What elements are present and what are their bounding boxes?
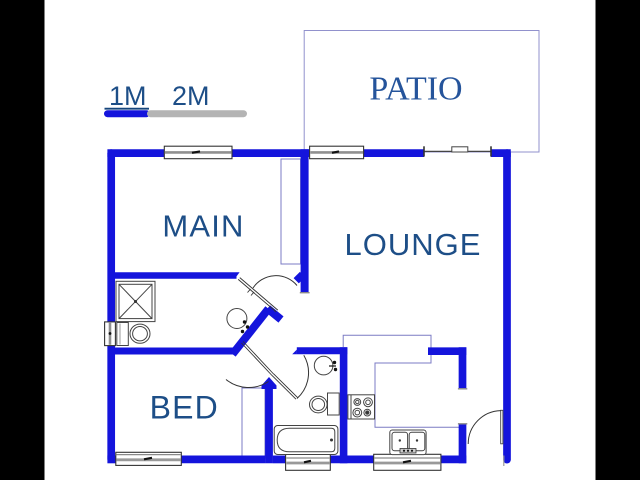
svg-text:LOUNGE: LOUNGE [345,227,482,262]
svg-text:PATIO: PATIO [369,71,462,108]
svg-text:BED: BED [150,389,219,425]
svg-text:MAIN: MAIN [162,209,244,244]
svg-text:1M: 1M [109,81,147,111]
svg-text:2M: 2M [172,81,210,111]
